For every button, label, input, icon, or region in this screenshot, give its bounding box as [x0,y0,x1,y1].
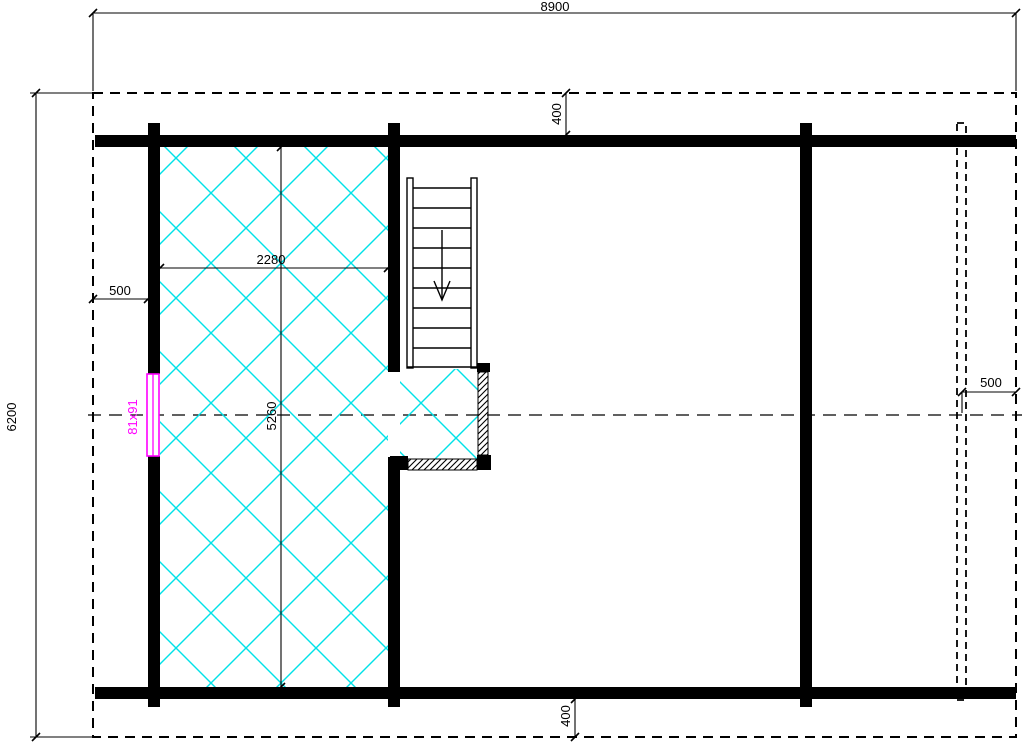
railing-post-top [477,363,490,372]
stair-direction-arrow-icon [434,230,450,300]
stair-stringer-right [471,178,477,368]
loft-floor-hatch-landing [400,369,478,459]
window-size-label: 81x91 [125,399,140,434]
floor-plan-drawing: 2280 5260 81x91 [0,0,1024,744]
roof-offset-top-dimension: 400 [549,89,570,139]
wall-bottom [95,687,1016,699]
overall-width-label: 8900 [541,0,570,14]
stair-stringer-left [407,178,413,368]
stair-partition-wall-lower [388,457,400,707]
side-offset-right-label: 500 [980,375,1002,390]
wall-left-lower-segment [148,456,160,707]
overall-width-dimension: 8900 [89,0,1020,91]
side-offset-left-dimension: 500 [89,283,152,303]
roof-offset-top-label: 400 [549,103,564,125]
roof-offset-bottom-label: 400 [558,705,573,727]
railing-corner-post [477,455,491,470]
staircase [407,178,477,368]
side-offset-right-dimension: 500 [958,375,1020,413]
overall-depth-label: 6200 [4,403,19,432]
side-offset-left-label: 500 [109,283,131,298]
interior-wall [800,123,812,707]
railing-post-left [390,456,408,470]
wall-left-upper-segment [148,123,160,374]
overall-depth-dimension: 6200 [4,89,92,741]
wall-top [95,135,1016,147]
loft-depth-label: 5260 [264,402,279,431]
railing-vertical [478,372,488,455]
roof-offset-bottom-dimension: 400 [558,695,579,741]
floor-plan-canvas: 2280 5260 81x91 [0,0,1024,744]
railing-horizontal [408,459,477,470]
stair-partition-wall-upper [388,123,400,372]
